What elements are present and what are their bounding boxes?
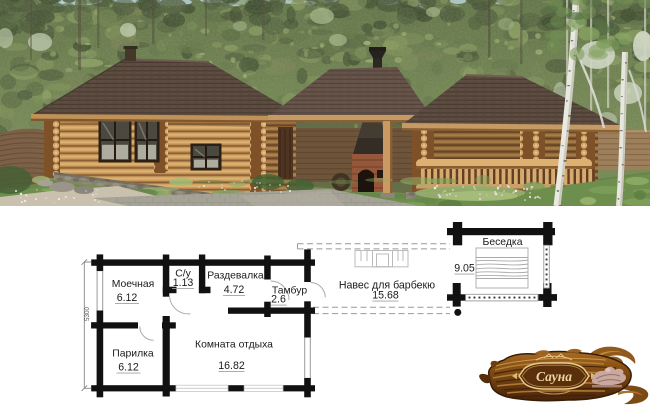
svg-text:Сауна: Сауна xyxy=(536,369,572,384)
